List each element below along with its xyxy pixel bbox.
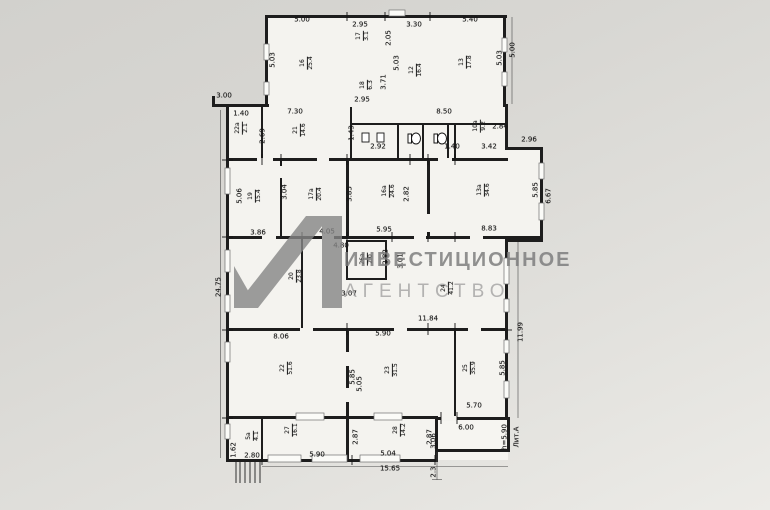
room-label: 2441.2	[441, 281, 455, 294]
room-label: 2251.6	[280, 361, 294, 374]
room-label: 22а2.1	[235, 121, 249, 134]
floorplan-scan: 5.002.953.305.403.001.407.308.502.952.92…	[0, 0, 770, 510]
room-label: 186.3	[360, 80, 374, 90]
room-label: 2716.1	[285, 423, 299, 436]
room-label: 2023.8	[289, 269, 303, 282]
room-label: 1915.4	[248, 189, 262, 202]
room-label: 173.1	[356, 31, 370, 41]
room-label-layer: 1625.4173.1186.31216.41317.822а2.12114.6…	[0, 0, 770, 510]
room-label: 2114.6	[293, 123, 307, 136]
room-label: 2331.5	[385, 363, 399, 376]
room-label: 1317.8	[459, 55, 473, 68]
room-label: 26а2.0	[360, 252, 374, 265]
room-label: 2535.9	[463, 361, 477, 374]
room-label: 13а34.6	[477, 183, 491, 196]
room-label: 5а4.1	[246, 431, 260, 441]
room-label: 1625.4	[300, 56, 314, 69]
room-label: 17а20.4	[309, 187, 323, 200]
room-label: 16а24.6	[382, 184, 396, 197]
room-label: 2814.2	[393, 423, 407, 436]
room-label: 1216.4	[409, 63, 423, 76]
room-label: 10а9.2	[473, 119, 487, 132]
